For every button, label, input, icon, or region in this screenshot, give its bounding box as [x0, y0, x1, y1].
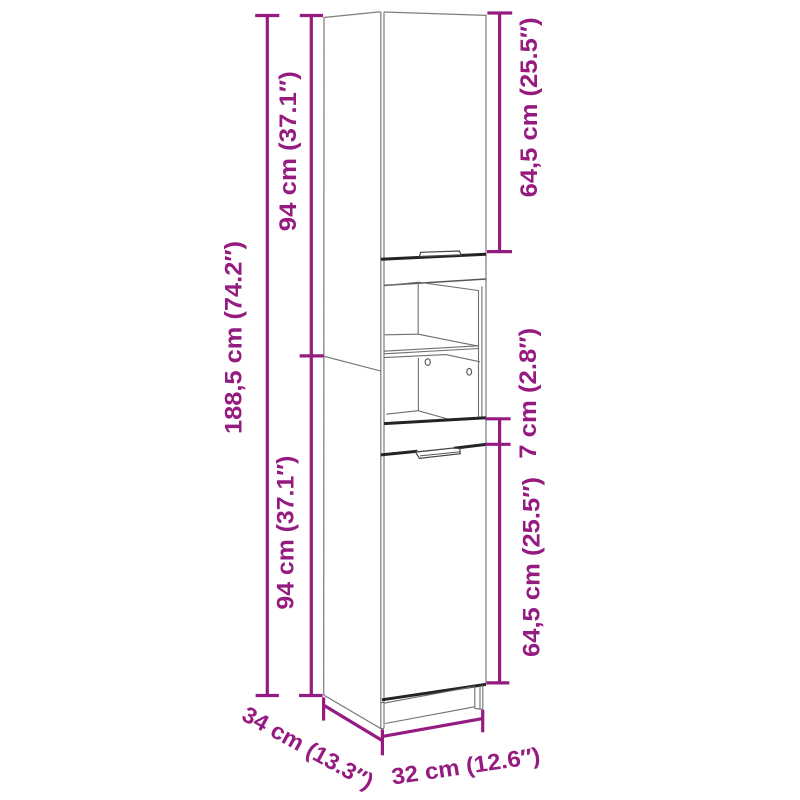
- svg-text:188,5 cm (74.2″): 188,5 cm (74.2″): [221, 241, 248, 434]
- svg-text:64,5 cm (25.5″): 64,5 cm (25.5″): [519, 477, 546, 657]
- svg-text:64,5 cm (25.5″): 64,5 cm (25.5″): [516, 17, 543, 197]
- svg-text:94 cm (37.1″): 94 cm (37.1″): [275, 71, 302, 231]
- svg-text:94 cm (37.1″): 94 cm (37.1″): [273, 456, 300, 610]
- svg-text:7 cm (2.8″): 7 cm (2.8″): [515, 328, 542, 459]
